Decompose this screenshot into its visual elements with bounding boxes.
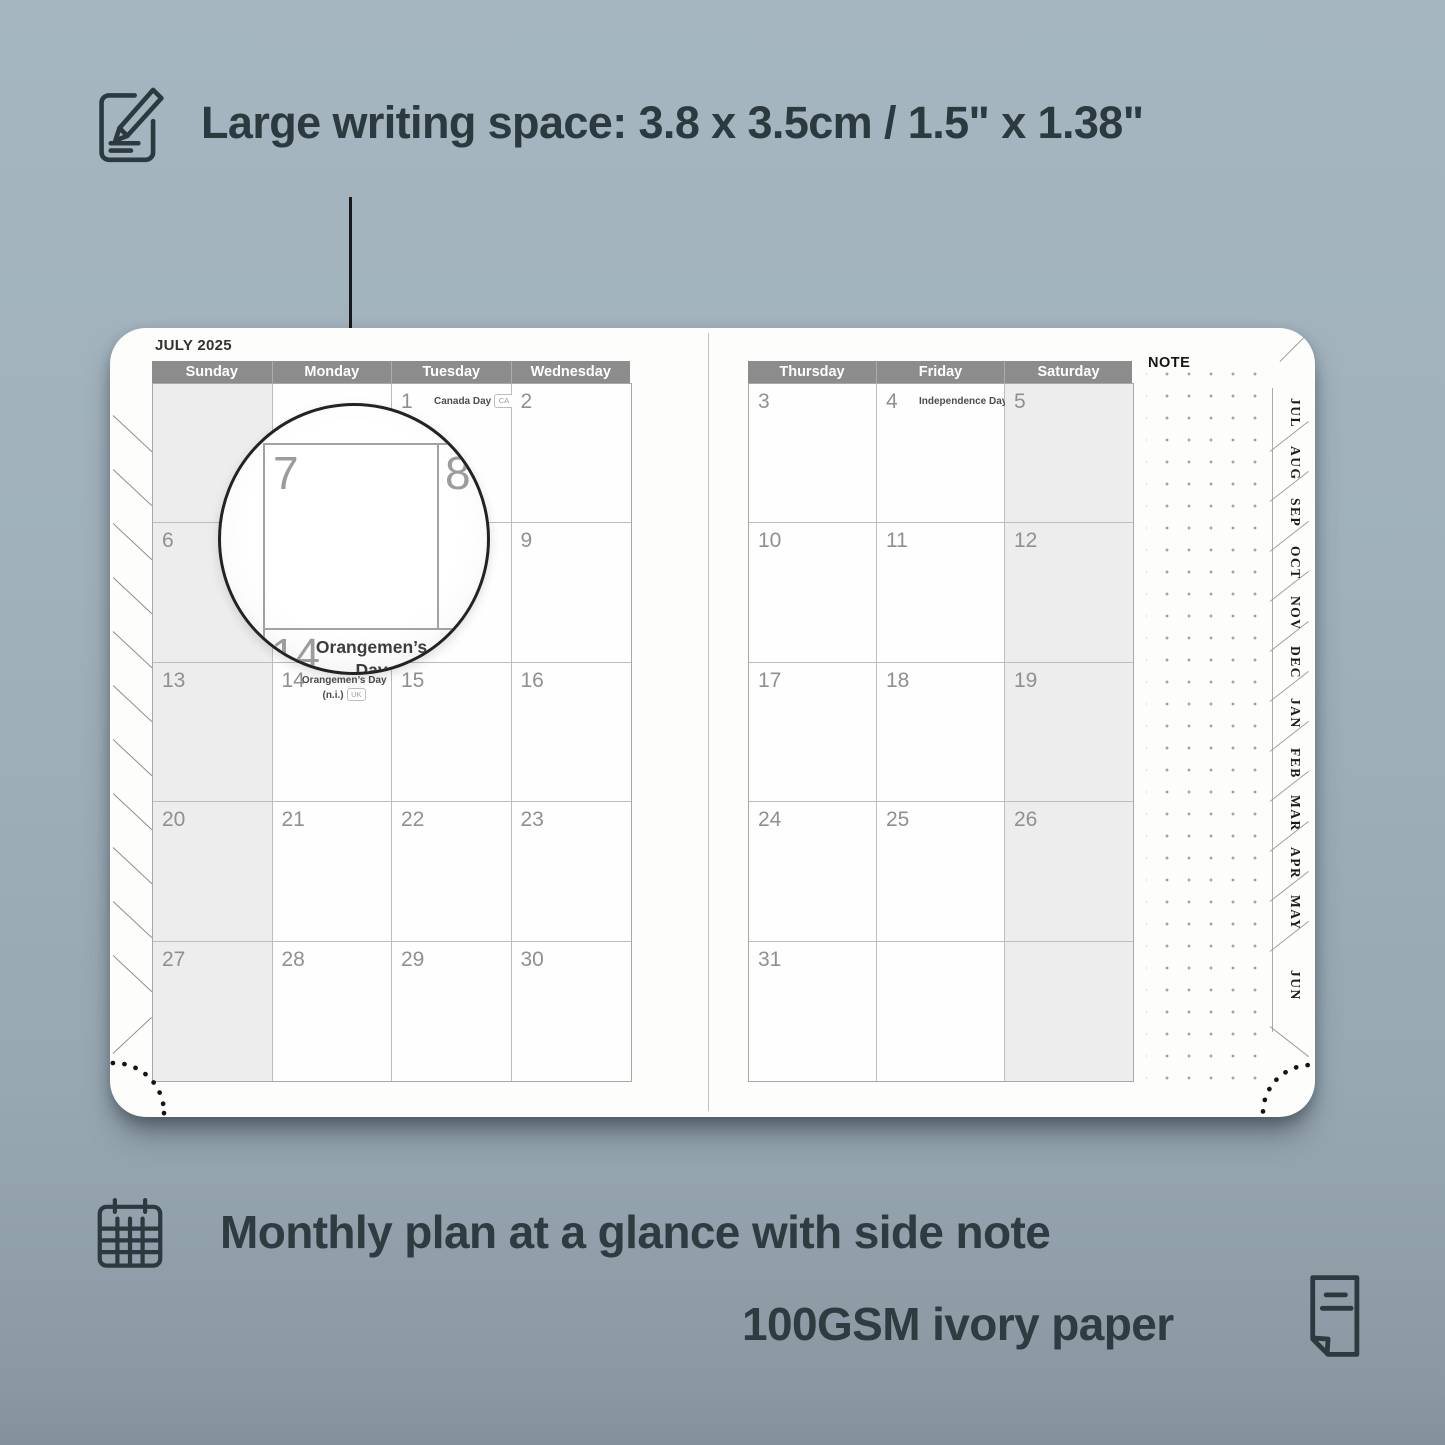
month-tab-label: APR (1287, 847, 1303, 879)
headline: Large writing space: 3.8 x 3.5cm / 1.5" … (85, 74, 1143, 172)
calendar-cell: 12 (1005, 523, 1133, 662)
day-number: 9 (521, 529, 533, 553)
calendar-cell: 29 (392, 942, 512, 1081)
holiday-label: Orangemen’s Day(n.i.)UK (301, 673, 389, 703)
day-number: 29 (401, 948, 424, 972)
calendar-cell: 5 (1005, 384, 1133, 523)
day-number: 3 (758, 390, 770, 414)
calendar-cell: 22 (392, 802, 512, 941)
day-number: 13 (162, 669, 185, 693)
calendar-cell: 30 (512, 942, 632, 1081)
day-number: 18 (886, 669, 909, 693)
magnified-grid-line (437, 443, 439, 628)
caption-paper-text: 100GSM ivory paper (742, 1297, 1174, 1351)
magnified-holiday-label: Orangemen’s Day (n.i.)UK (299, 636, 444, 675)
page-edge-hatch (113, 469, 153, 506)
weekday-header-row-right: ThursdayFridaySaturday (748, 361, 1132, 383)
day-number: 24 (758, 808, 781, 832)
caption-monthly-plan: Monthly plan at a glance with side note (88, 1188, 1050, 1276)
month-tab-sep: SEP (1273, 488, 1315, 538)
calendar-cell: 18 (877, 663, 1005, 802)
day-number: 31 (758, 948, 781, 972)
weekday-header: Friday (876, 361, 1004, 383)
calendar-cell: 25 (877, 802, 1005, 941)
day-number: 17 (758, 669, 781, 693)
page-edge-hatch (113, 1017, 153, 1054)
day-number: 6 (162, 529, 174, 553)
weekday-header: Tuesday (391, 361, 511, 383)
paper-sheet-icon (1282, 1266, 1378, 1366)
month-tab-dec: DEC (1273, 638, 1315, 688)
month-tab-strip: JULAUGSEPOCTNOVDECJANFEBMARAPRMAYJUN (1272, 388, 1315, 1032)
day-number: 20 (162, 808, 185, 832)
month-tab-mar: MAR (1273, 788, 1315, 838)
day-number: 19 (1014, 669, 1037, 693)
calendar-cell: 24 (749, 802, 877, 941)
magnified-grid-line (263, 443, 487, 445)
page-edge-hatch (113, 631, 153, 668)
weekday-header: Wednesday (511, 361, 631, 383)
month-tab-label: NOV (1287, 596, 1303, 631)
day-number: 26 (1014, 808, 1037, 832)
page-edge-hatch (113, 955, 153, 992)
day-number: 27 (162, 948, 185, 972)
month-title: JULY 2025 (155, 337, 232, 354)
calendar-cell: 16 (512, 663, 632, 802)
day-number: 30 (521, 948, 544, 972)
calendar-cell: 4Independence DayUS (877, 384, 1005, 523)
country-badge: UK (347, 688, 366, 702)
calendar-cell: 20 (153, 802, 273, 941)
holiday-text: (n.i.) (322, 690, 343, 701)
day-number: 21 (282, 808, 305, 832)
planner-product-infographic: Large writing space: 3.8 x 3.5cm / 1.5" … (0, 0, 1445, 1445)
calendar-cell: 10 (749, 523, 877, 662)
page-edge-hatch (113, 685, 153, 722)
day-number: 22 (401, 808, 424, 832)
day-number: 28 (282, 948, 305, 972)
day-number: 15 (401, 669, 424, 693)
calendar-cell: 23 (512, 802, 632, 941)
page-edge-hatch (113, 415, 153, 452)
headline-text: Large writing space: 3.8 x 3.5cm / 1.5" … (201, 97, 1143, 149)
tab-separator (1270, 1026, 1309, 1057)
weekday-header: Thursday (748, 361, 876, 383)
month-tab-label: SEP (1287, 498, 1303, 527)
month-tab-jan: JAN (1273, 688, 1315, 738)
day-number: 16 (521, 669, 544, 693)
month-tab-feb: FEB (1273, 738, 1315, 788)
month-tab-apr: APR (1273, 838, 1315, 888)
month-tab-label: OCT (1287, 546, 1303, 580)
day-number: 2 (521, 390, 533, 414)
month-tab-oct: OCT (1273, 538, 1315, 588)
month-tab-label: FEB (1287, 748, 1303, 779)
month-tab-label: JAN (1287, 698, 1303, 729)
tab-corner-cut (1280, 328, 1315, 362)
note-dot-grid (1146, 354, 1272, 1084)
book-spine-line (708, 333, 709, 1111)
calendar-cell: 31 (749, 942, 877, 1081)
month-tab-jul: JUL (1273, 388, 1315, 438)
holiday-label: Canada DayCA (434, 394, 514, 408)
calendar-grid-icon (88, 1188, 172, 1276)
page-edge-hatch (113, 847, 153, 884)
month-tab-label: DEC (1287, 646, 1303, 679)
day-number: 10 (758, 529, 781, 553)
calendar-cell: 19 (1005, 663, 1133, 802)
calendar-cell: 14Orangemen’s Day(n.i.)UK (273, 663, 393, 802)
month-tab-may: MAY (1273, 888, 1315, 938)
note-label: NOTE (1148, 355, 1195, 371)
calendar-cell: 13 (153, 663, 273, 802)
day-number: 5 (1014, 390, 1026, 414)
month-tab-label: JUN (1287, 970, 1303, 1001)
calendar-cell: 3 (749, 384, 877, 523)
weekday-header: Sunday (152, 361, 272, 383)
holiday-text: Independence Day (919, 396, 1007, 407)
magnifier-circle: 7 8 14 Orangemen’s Day (n.i.)UK (218, 403, 490, 675)
day-number: 12 (1014, 529, 1037, 553)
calendar-cell: 9 (512, 523, 632, 662)
weekday-header-row-left: SundayMondayTuesdayWednesday (152, 361, 630, 383)
magnified-grid-line (263, 443, 265, 672)
month-tab-nov: NOV (1273, 588, 1315, 638)
page-edge-hatch (113, 739, 153, 776)
day-number: 25 (886, 808, 909, 832)
right-page-grid: 34Independence DayUS51011121718192425263… (748, 383, 1134, 1082)
page-edge-hatch (113, 793, 153, 830)
month-tab-label: JUL (1287, 398, 1303, 428)
calendar-cell: 27 (153, 942, 273, 1081)
calendar-cell (877, 942, 1005, 1081)
magnified-day-8: 8 (445, 446, 471, 500)
page-edge-hatch (113, 577, 153, 614)
weekday-header: Saturday (1004, 361, 1132, 383)
month-tab-label: AUG (1287, 446, 1303, 481)
calendar-cell: 26 (1005, 802, 1133, 941)
holiday-text: Canada Day (434, 396, 491, 407)
calendar-cell: 28 (273, 942, 393, 1081)
page-edge-hatch (113, 523, 153, 560)
calendar-cell: 21 (273, 802, 393, 941)
calendar-cell: 11 (877, 523, 1005, 662)
day-number: 23 (521, 808, 544, 832)
pencil-note-icon (85, 74, 177, 172)
page-edge-hatch (113, 901, 153, 938)
magnified-day-7: 7 (273, 446, 299, 500)
holiday-text: Orangemen’s Day (302, 675, 387, 686)
calendar-cell (1005, 942, 1133, 1081)
weekday-header: Monday (272, 361, 392, 383)
day-number: 4 (886, 390, 898, 414)
calendar-cell: 15 (392, 663, 512, 802)
day-number: 11 (886, 529, 908, 553)
calendar-cell: 17 (749, 663, 877, 802)
calendar-cell: 2 (512, 384, 632, 523)
month-tab-aug: AUG (1273, 438, 1315, 488)
caption-monthly-plan-text: Monthly plan at a glance with side note (220, 1205, 1050, 1259)
day-number: 1 (401, 390, 413, 414)
month-tab-jun: JUN (1273, 938, 1315, 1032)
